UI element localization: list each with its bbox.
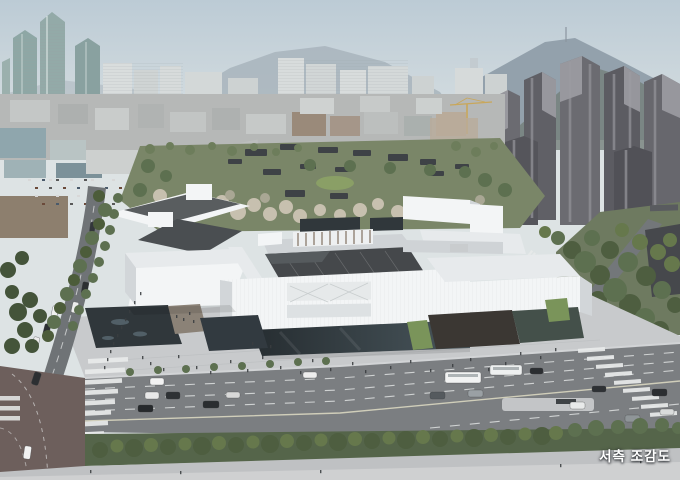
aerial-rendering: 서측 조감도 bbox=[0, 0, 680, 480]
intersection bbox=[0, 366, 85, 480]
view-caption: 서측 조감도 bbox=[599, 445, 671, 465]
rendering-scene bbox=[0, 0, 680, 480]
